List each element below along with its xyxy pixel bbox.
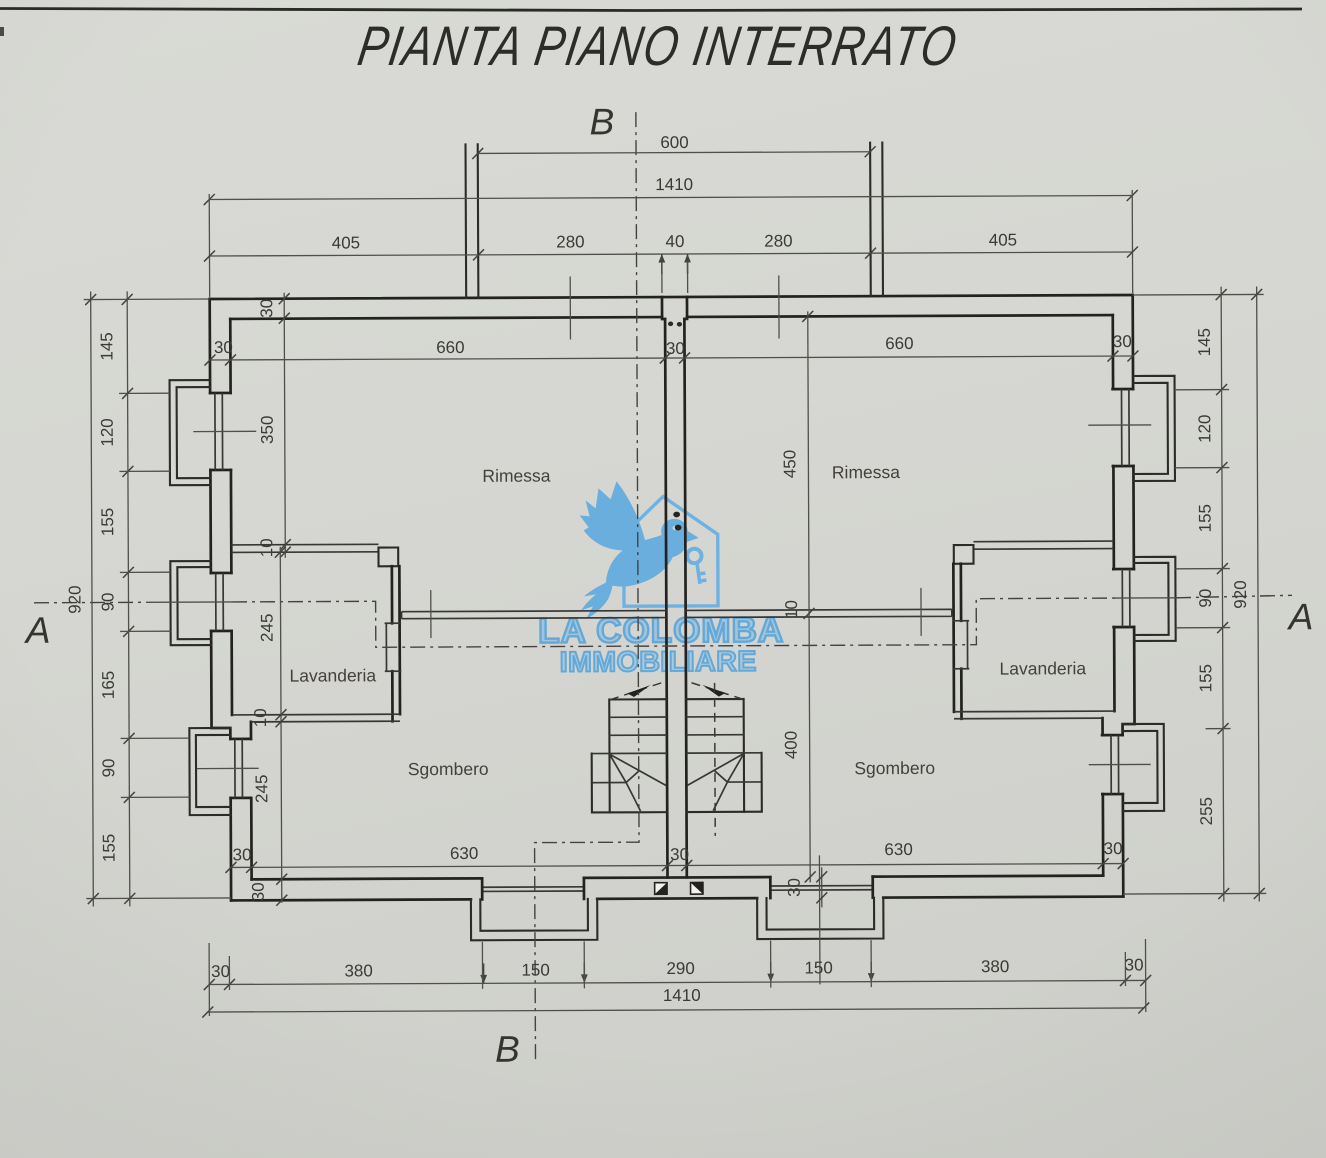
- svg-text:155: 155: [98, 508, 117, 536]
- svg-text:1410: 1410: [655, 175, 693, 194]
- svg-text:30: 30: [233, 845, 252, 864]
- svg-text:B: B: [589, 101, 614, 142]
- svg-text:255: 255: [1197, 797, 1216, 825]
- svg-text:150: 150: [804, 958, 832, 977]
- svg-text:30: 30: [785, 878, 804, 897]
- svg-text:1410: 1410: [663, 986, 701, 1005]
- svg-text:A: A: [24, 610, 51, 651]
- svg-text:30: 30: [214, 338, 233, 357]
- svg-text:30: 30: [1125, 955, 1144, 974]
- svg-text:405: 405: [332, 233, 360, 252]
- svg-text:380: 380: [981, 957, 1009, 976]
- svg-text:660: 660: [436, 338, 464, 357]
- svg-text:30: 30: [670, 845, 689, 864]
- svg-text:Lavanderia: Lavanderia: [999, 658, 1086, 678]
- svg-text:630: 630: [884, 840, 912, 859]
- svg-text:400: 400: [782, 731, 801, 759]
- svg-text:155: 155: [100, 834, 119, 862]
- svg-text:155: 155: [1196, 664, 1215, 692]
- svg-text:145: 145: [1195, 328, 1214, 356]
- svg-text:Lavanderia: Lavanderia: [289, 665, 376, 685]
- svg-text:600: 600: [660, 133, 688, 152]
- svg-text:380: 380: [344, 961, 372, 980]
- svg-text:120: 120: [1195, 414, 1214, 442]
- svg-text:350: 350: [258, 416, 277, 444]
- svg-text:40: 40: [665, 232, 684, 251]
- svg-text:10: 10: [257, 538, 276, 557]
- svg-text:30: 30: [211, 962, 230, 981]
- svg-text:90: 90: [98, 592, 117, 611]
- svg-text:660: 660: [885, 334, 913, 353]
- svg-text:30: 30: [1104, 839, 1123, 858]
- svg-text:630: 630: [450, 844, 478, 863]
- svg-text:450: 450: [780, 450, 799, 478]
- svg-text:30: 30: [1113, 332, 1132, 351]
- svg-text:10: 10: [782, 600, 801, 619]
- svg-text:280: 280: [764, 231, 792, 250]
- svg-text:10: 10: [251, 708, 270, 727]
- svg-text:B: B: [495, 1029, 520, 1070]
- svg-text:290: 290: [666, 959, 694, 978]
- svg-text:30: 30: [257, 299, 276, 318]
- svg-text:280: 280: [556, 232, 584, 251]
- svg-text:90: 90: [99, 758, 118, 777]
- svg-text:90: 90: [1196, 589, 1215, 608]
- svg-text:920: 920: [1231, 580, 1250, 608]
- svg-text:120: 120: [98, 418, 117, 446]
- svg-text:PIANTA PIANO INTERRATO: PIANTA PIANO INTERRATO: [354, 14, 962, 77]
- svg-text:920: 920: [65, 585, 84, 613]
- svg-text:A: A: [1287, 596, 1314, 637]
- svg-text:IMMOBILIARE: IMMOBILIARE: [560, 646, 757, 679]
- svg-text:165: 165: [99, 671, 118, 699]
- svg-text:245: 245: [258, 614, 277, 642]
- svg-text:155: 155: [1196, 504, 1215, 532]
- svg-text:405: 405: [989, 231, 1017, 250]
- svg-text:30: 30: [249, 882, 268, 901]
- svg-text:30: 30: [666, 339, 685, 358]
- svg-text:145: 145: [97, 332, 116, 360]
- svg-text:245: 245: [252, 775, 271, 803]
- svg-text:Rimessa: Rimessa: [832, 462, 900, 482]
- svg-text:150: 150: [521, 961, 549, 980]
- svg-text:Rimessa: Rimessa: [482, 466, 550, 486]
- svg-text:Sgombero: Sgombero: [854, 758, 935, 778]
- svg-text:Sgombero: Sgombero: [408, 759, 489, 779]
